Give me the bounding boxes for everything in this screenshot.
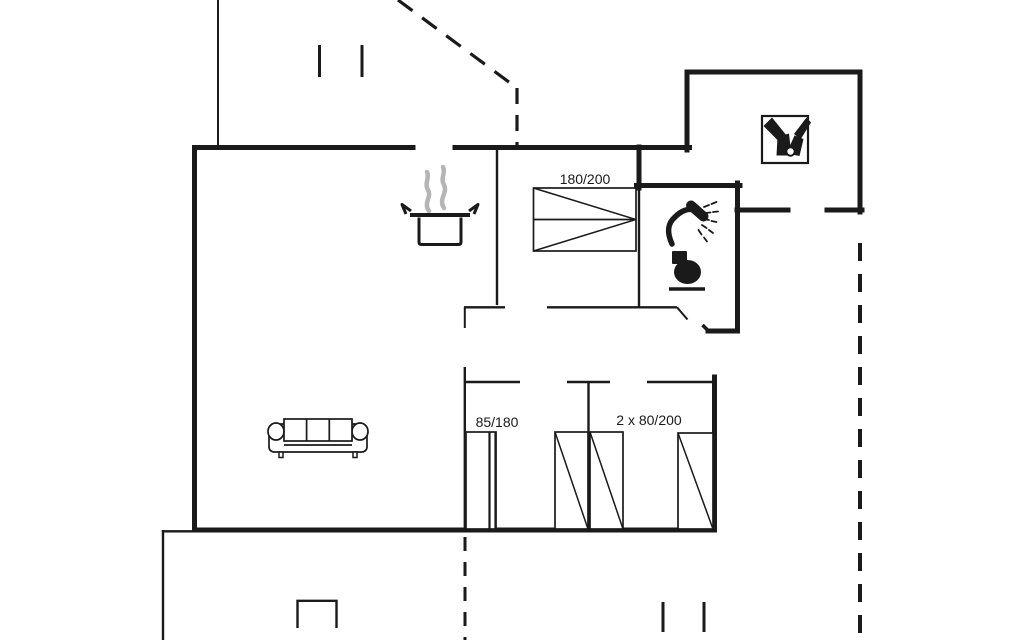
shower-icon-spray-9 bbox=[699, 230, 702, 235]
shower-icon-spray-3 bbox=[705, 213, 711, 214]
label-double-bed: 180/200 bbox=[560, 171, 611, 187]
sofa-leg-right bbox=[353, 452, 357, 458]
floor-plan: 180/20085/1802 x 80/200 bbox=[0, 0, 1024, 640]
shower-icon-spray-7 bbox=[702, 225, 707, 228]
shower-icon-spray-8 bbox=[709, 230, 713, 233]
shower-icon-head bbox=[691, 206, 704, 217]
label-twin-beds: 2 x 80/200 bbox=[616, 412, 682, 428]
shower-icon-spray-5 bbox=[704, 219, 709, 220]
terrace-window-mark bbox=[298, 601, 337, 628]
bathroom-door-leaf bbox=[677, 307, 688, 319]
toilet-icon-bowl bbox=[674, 260, 701, 284]
sofa-arm-right bbox=[352, 423, 368, 440]
sofa-arm-left bbox=[268, 423, 284, 440]
steam-icon-1 bbox=[427, 172, 429, 211]
sofa-backrest bbox=[284, 419, 352, 441]
shower-icon-spray-4 bbox=[713, 212, 718, 213]
shower-icon-spray-2 bbox=[712, 202, 717, 204]
steam-icon-2 bbox=[442, 167, 445, 208]
boundary-dashed-diagonal bbox=[398, 0, 517, 88]
shower-icon-arm bbox=[669, 209, 696, 244]
bathroom-east-wall-jog bbox=[708, 183, 738, 331]
cooking-pot-icon-handle-right bbox=[469, 205, 478, 215]
bathroom-door-tick bbox=[703, 325, 709, 331]
sofa-leg-left bbox=[279, 452, 283, 458]
boot-wash-icon-drain bbox=[786, 147, 794, 155]
shower-icon-spray-10 bbox=[704, 238, 707, 242]
bed-85x180 bbox=[466, 432, 496, 529]
label-single-bed: 85/180 bbox=[476, 414, 519, 430]
cooking-pot-icon-body bbox=[419, 218, 461, 245]
shower-icon-spray-1 bbox=[704, 205, 709, 207]
cooking-pot-icon-handle-left bbox=[402, 205, 411, 215]
shower-icon-spray-6 bbox=[712, 221, 717, 222]
floor-plan-svg: 180/20085/1802 x 80/200 bbox=[0, 0, 1024, 640]
